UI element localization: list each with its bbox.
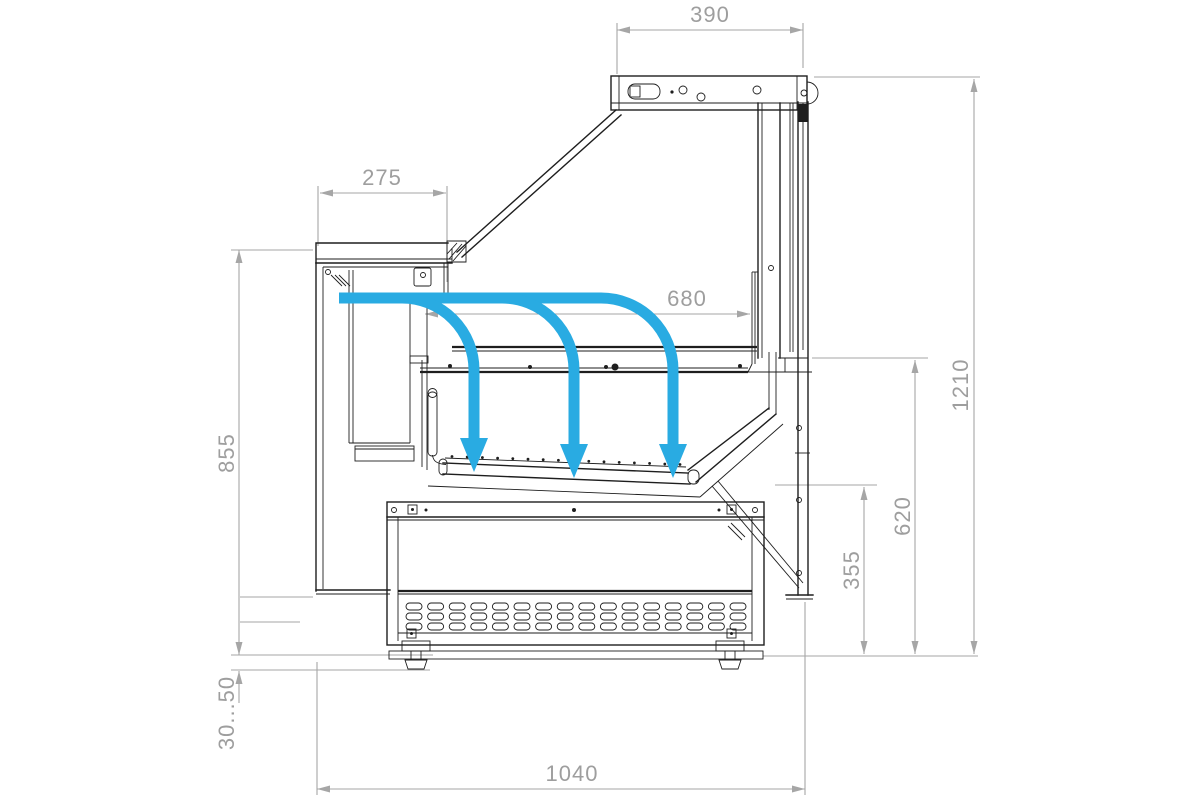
dimension-top-width: 390: [617, 2, 803, 74]
technical-drawing-page: 390 275 680 855: [0, 0, 1200, 800]
dim-label-855: 855: [214, 433, 239, 473]
airflow-arrows: [339, 298, 687, 478]
hinge-knuckle: [807, 82, 818, 104]
dim-label-275: 275: [362, 165, 402, 190]
airflow-arrowhead-1: [460, 438, 488, 472]
insulation-hatch: [331, 275, 350, 286]
ventilation-grille: [398, 591, 752, 638]
airflow-curve-1: [395, 298, 474, 440]
dimension-annotations: 390 275 680 855: [214, 2, 980, 795]
display-case-section-drawing: 390 275 680 855: [0, 0, 1200, 800]
dim-label-390: 390: [690, 2, 730, 27]
drain-pipe: [428, 392, 437, 456]
dimension-total-depth: 1040: [317, 602, 805, 795]
dimension-total-height: 1210: [763, 77, 980, 656]
slanted-glass: [447, 110, 621, 262]
base-unit: [387, 502, 764, 669]
dimension-counter-height: 855: [214, 250, 313, 655]
dim-label-680: 680: [667, 286, 707, 311]
dimension-foot-adjust: 30...50: [214, 655, 433, 750]
dimension-front-height: 620: [812, 358, 928, 654]
dimension-well-height: 355: [775, 485, 877, 654]
airflow-arrowhead-2: [560, 444, 588, 478]
dimension-counter-depth: 275: [318, 165, 447, 282]
dim-label-1210: 1210: [948, 359, 973, 412]
dim-label-30-50: 30...50: [214, 676, 239, 750]
dim-label-620: 620: [890, 496, 915, 536]
base-bottom-plate: [389, 651, 763, 659]
dim-label-1040: 1040: [546, 761, 599, 786]
front-glass-column: [748, 102, 813, 599]
dim-label-355: 355: [839, 550, 864, 590]
ventilation-grille-slots: [406, 603, 746, 630]
top-canopy: [611, 76, 818, 120]
